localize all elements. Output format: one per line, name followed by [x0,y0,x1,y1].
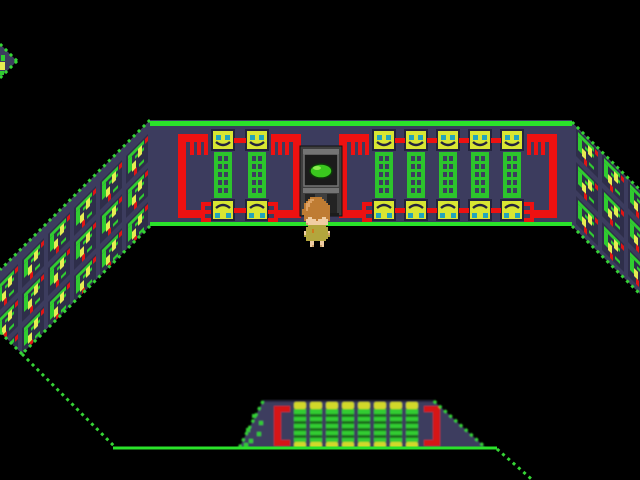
face-eye [450,135,455,140]
face-connector [395,208,405,213]
face-eye [482,135,487,140]
green-column [406,402,418,448]
face-eye [215,213,220,218]
face-eye [250,135,255,140]
smiley-face-tile [212,130,234,150]
face-eye [514,135,519,140]
smiley-face-tile [405,130,427,150]
face-eye [483,213,488,218]
face-eye [377,135,382,140]
face-eye [504,213,509,218]
face-eye [226,213,231,218]
face-eye [259,135,264,140]
game-viewport[interactable] [0,0,640,480]
face-column [469,130,491,220]
green-column [342,402,354,448]
green-column [294,402,306,448]
face-eye [472,213,477,218]
green-blob-icon [310,164,332,178]
ladder-panel [439,152,457,198]
face-eye [260,213,265,218]
face-column [437,130,459,220]
smiley-face-tile [469,130,491,150]
face-column [212,130,234,220]
red-bracket [274,406,281,446]
smiley-face-tile [373,130,395,150]
smiley-face-tile [437,130,459,150]
face-column [405,130,427,220]
red-bracket [433,406,440,446]
face-eye [515,213,520,218]
face-connector [427,138,437,143]
face-eye [419,213,424,218]
face-connector [395,138,405,143]
ladder-panel [407,152,425,198]
green-column [326,402,338,448]
player-character[interactable] [302,197,330,247]
smiley-face-tile [501,130,523,150]
face-eye [225,135,230,140]
ladder-panel [471,152,489,198]
ladder-panel [375,152,393,198]
green-column [358,402,370,448]
face-connector [459,208,469,213]
face-column [501,130,523,220]
face-connector [491,138,501,143]
ladder-panel [248,152,266,198]
face-column [246,130,268,220]
face-eye [440,213,445,218]
face-eye [387,213,392,218]
face-connector [234,138,246,143]
face-eye [408,213,413,218]
face-eye [473,135,478,140]
face-connector [491,208,501,213]
face-connector [234,208,246,213]
face-eye [441,135,446,140]
green-column [374,402,386,448]
face-eye [249,213,254,218]
face-column [373,130,395,220]
smiley-face-tile [246,130,268,150]
face-eye [216,135,221,140]
game-scene [0,0,640,480]
back-wall-bottom-trim [150,222,572,226]
face-connector [427,208,437,213]
face-eye [451,213,456,218]
green-column [390,402,402,448]
back-wall [150,120,572,226]
ladder-panel [503,152,521,198]
back-wall-top-trim [150,121,572,126]
face-connector [459,138,469,143]
face-eye [376,213,381,218]
face-eye [418,135,423,140]
face-eye [505,135,510,140]
green-column [310,402,322,448]
ladder-panel [214,152,232,198]
face-eye [409,135,414,140]
face-eye [386,135,391,140]
